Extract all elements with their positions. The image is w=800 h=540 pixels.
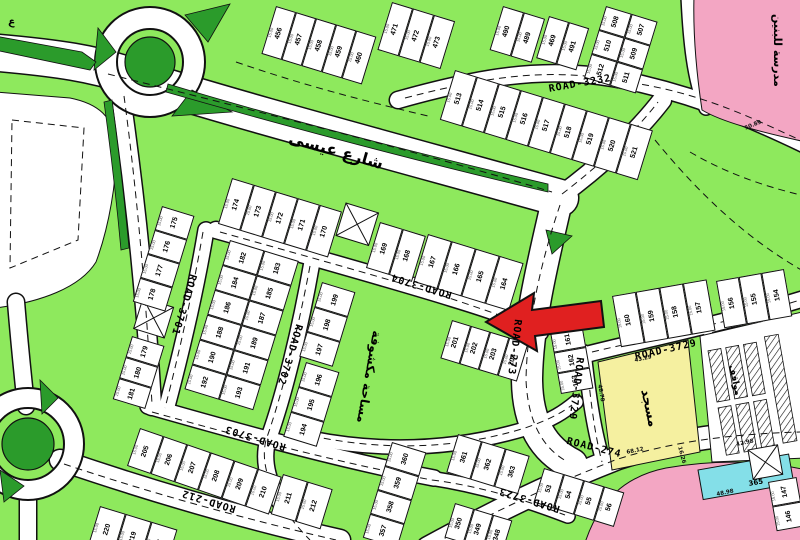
plot-dimension: 15.00 xyxy=(237,335,244,346)
plot-dimension: 15.00 xyxy=(552,339,558,350)
plot-number: 209 xyxy=(235,477,245,490)
plot-dimension: 15.00 xyxy=(490,106,497,117)
plot-dimension: 15.00 xyxy=(688,305,694,316)
plot-dimension: 15.00 xyxy=(766,293,772,304)
plot-number: 191 xyxy=(242,361,252,374)
plot-block-b7: 5315.005415.005515.005615.00 xyxy=(533,468,624,527)
plot-number: 160 xyxy=(624,313,633,326)
plot-dimension: 15.00 xyxy=(225,250,232,261)
plot-block-b1: 20515.0020615.0020715.0020815.0020915.00… xyxy=(127,428,282,515)
plot-dimension: 15.00 xyxy=(195,349,202,360)
plot-number: 362 xyxy=(483,457,493,470)
plot-dimension: 15.00 xyxy=(451,451,458,462)
plot-dimension: 15.00 xyxy=(587,63,594,74)
plot-dimension: 15.00 xyxy=(601,15,608,26)
plot-number: 516 xyxy=(519,112,529,125)
plot-number: 147 xyxy=(780,485,789,498)
plot-number: 154 xyxy=(772,288,781,301)
plot-dimension: 15.00 xyxy=(301,372,308,383)
plot-number: 176 xyxy=(162,240,172,253)
plot-dimension: 15.00 xyxy=(743,297,749,308)
plot-number: 195 xyxy=(306,398,316,411)
plot-number: 510 xyxy=(603,39,613,52)
plot-dimension: 15.00 xyxy=(268,212,275,223)
plot-number: 508 xyxy=(610,15,620,28)
plot-block-c3: 19915.0019815.0019715.00 xyxy=(299,282,355,367)
plot-number: 358 xyxy=(386,500,396,513)
plot-dimension: 15.00 xyxy=(578,495,585,506)
plot-number: 507 xyxy=(636,23,646,36)
plot-number: 187 xyxy=(258,311,268,324)
plot-dimension: 15.00 xyxy=(617,318,623,329)
plot-dimension: 15.00 xyxy=(387,451,394,462)
plot-number: 490 xyxy=(502,25,512,38)
plot-number: 56 xyxy=(605,502,614,512)
plot-dimension: 15.00 xyxy=(420,255,427,266)
plot-dimension: 15.00 xyxy=(556,126,563,137)
plot-dimension: 15.00 xyxy=(475,458,482,469)
plot-block-c2: 17915.0018015.0018115.00 xyxy=(113,336,165,409)
plot-dimension: 15.00 xyxy=(310,317,317,328)
plot-number: 174 xyxy=(231,198,241,211)
plot-dimension: 15.00 xyxy=(467,270,474,281)
plot-number: 158 xyxy=(671,305,680,318)
plot-block-b2: 21115.0021215.00 xyxy=(271,474,333,529)
plot-dimension: 15.00 xyxy=(499,465,506,476)
plot-number: 518 xyxy=(563,125,573,138)
plot-block-t5: 50815.0050715.0051015.0050915.0051215.00… xyxy=(584,6,658,94)
plot-number: 348 xyxy=(492,528,502,540)
plot-number: 189 xyxy=(250,336,260,349)
plot-dimension: 15.00 xyxy=(468,99,475,110)
plot-number: 360 xyxy=(401,453,411,466)
plot-number: 170 xyxy=(319,225,329,238)
plot-number: 211 xyxy=(284,491,294,504)
plot-dimension: 15.00 xyxy=(365,523,372,534)
plot-number: 349 xyxy=(473,522,483,535)
plot-dimension: 15.00 xyxy=(224,198,231,209)
plot-dimension: 15.00 xyxy=(444,263,451,274)
plot-number: 179 xyxy=(140,345,150,358)
plot-number: 193 xyxy=(235,386,245,399)
plot-number: 169 xyxy=(379,242,389,255)
plot-number: 173 xyxy=(253,204,263,217)
plot-block-r1: 16015.0015915.0015815.0015715.00 xyxy=(612,279,716,347)
plot-number: 472 xyxy=(411,29,421,42)
plot-number: 205 xyxy=(140,444,150,457)
plot-dimension: 15.00 xyxy=(227,477,234,488)
plot-dimension: 15.00 xyxy=(721,301,727,312)
plot-146: 14615.00 xyxy=(772,502,800,532)
plot-dimension: 15.00 xyxy=(641,314,647,325)
plot-dimension: 15.00 xyxy=(446,92,453,103)
plot-number: 361 xyxy=(459,450,469,463)
plot-number: 208 xyxy=(211,469,221,482)
plot-block-m4: 20115.0020215.0020315.0020415.00 xyxy=(440,320,528,382)
plot-number: 185 xyxy=(265,286,275,299)
plot-number: 212 xyxy=(309,499,319,512)
plot-dimension: 15.00 xyxy=(620,47,627,58)
plot-number: 197 xyxy=(315,343,325,356)
plot-number: 519 xyxy=(585,132,595,145)
plot-number: 183 xyxy=(273,262,283,275)
plot-number: 489 xyxy=(523,31,533,44)
plot-number: 172 xyxy=(275,211,285,224)
plot-number: 521 xyxy=(629,145,639,158)
plot-number: 175 xyxy=(170,216,180,229)
plot-dimension: 15.00 xyxy=(187,374,194,385)
plot-block-m3: 16715.0016615.0016515.0016415.00 xyxy=(413,234,523,311)
plot-number: 165 xyxy=(475,270,485,283)
plot-dimension: 15.00 xyxy=(244,310,251,321)
plot-number: 207 xyxy=(187,461,197,474)
plot-dimension: 15.00 xyxy=(594,39,601,50)
plot-block-t2: 47115.0047215.0047315.00 xyxy=(377,2,455,69)
plot-number: 162 xyxy=(567,354,576,367)
plot-dimension: 15.00 xyxy=(395,249,402,260)
plot-number: 180 xyxy=(134,366,144,379)
plot-number: 186 xyxy=(223,301,233,314)
plot-number: 177 xyxy=(155,264,165,277)
plot-dimension: 15.00 xyxy=(135,287,142,298)
plot-number: 156 xyxy=(727,296,736,309)
plot-number: 178 xyxy=(148,288,158,301)
plot-dimension: 15.00 xyxy=(150,239,157,250)
plot-number: 357 xyxy=(379,524,389,537)
plot-number: 54 xyxy=(564,490,573,500)
plot-number: 159 xyxy=(648,309,657,322)
plot-number: 457 xyxy=(294,33,304,46)
plot-dimension: 15.00 xyxy=(156,453,163,464)
plot-dimension: 15.00 xyxy=(317,292,324,303)
plot-number: 359 xyxy=(393,477,403,490)
plot-number: 181 xyxy=(127,387,137,400)
plot-dimension: 15.00 xyxy=(302,342,309,353)
plot-dimension: 15.00 xyxy=(203,469,210,480)
plot-number: 53 xyxy=(544,484,553,494)
plot-dimension: 15.00 xyxy=(373,499,380,510)
plot-number: 363 xyxy=(507,465,517,478)
plot-number: 517 xyxy=(541,119,551,132)
plot-dimension: 15.00 xyxy=(775,515,781,526)
plot-dimension: 15.00 xyxy=(380,475,387,486)
plot-dimension: 15.00 xyxy=(115,386,122,397)
plot-map-canvas: 45615.0045715.0045815.0045915.0046015.00… xyxy=(0,0,800,540)
plot-number: 157 xyxy=(695,301,704,314)
plot-number: 513 xyxy=(453,92,463,105)
plot-number: 202 xyxy=(470,341,480,354)
plot-block-b6: 35015.0034915.0034815.00 xyxy=(444,503,512,540)
plot-number: 206 xyxy=(164,452,174,465)
plot-dimension: 15.00 xyxy=(93,523,100,534)
plot-dimension: 15.00 xyxy=(560,380,566,391)
plot-number: 166 xyxy=(451,262,461,275)
plot-block-g1: 18215.0018315.0018415.0018515.0018615.00… xyxy=(184,240,298,410)
plot-dimension: 15.00 xyxy=(534,119,541,130)
plot-dimension: 15.00 xyxy=(119,530,126,540)
plot-block-r3: 16115.0016215.0016315.00 xyxy=(550,326,593,394)
plot-number: 509 xyxy=(629,47,639,60)
plot-number: 459 xyxy=(334,45,344,58)
plot-dimension: 15.00 xyxy=(312,225,319,236)
plot-number: 171 xyxy=(297,218,307,231)
plot-number: 55 xyxy=(584,496,593,506)
plot-number: 471 xyxy=(390,23,400,36)
plot-block-t1: 45615.0045715.0045815.0045915.0046015.00 xyxy=(261,6,376,85)
plot-number: 520 xyxy=(607,139,617,152)
plot-dimension: 15.00 xyxy=(143,263,150,274)
plot-dimension: 15.00 xyxy=(294,397,301,408)
plot-dimension: 15.00 xyxy=(598,501,605,512)
plot-dimension: 15.00 xyxy=(491,277,498,288)
plot-number: 155 xyxy=(750,292,759,305)
plot-number: 188 xyxy=(216,326,226,339)
plot-number: 161 xyxy=(564,333,573,346)
plot-number: 204 xyxy=(508,353,518,366)
plot-number: 511 xyxy=(621,71,631,84)
plot-number: 219 xyxy=(128,530,138,540)
plot-number: 190 xyxy=(208,351,218,364)
plot-number: 168 xyxy=(402,249,412,262)
plot-block-b4: 36015.0035915.0035815.0035715.00 xyxy=(363,442,427,540)
plot-dimension: 15.00 xyxy=(578,133,585,144)
plot-dimension: 15.00 xyxy=(558,489,565,500)
plot-number: 220 xyxy=(102,522,112,535)
plot-number: 469 xyxy=(548,33,558,46)
plot-block-b5: 36115.0036215.0036315.00 xyxy=(446,434,529,494)
plot-number: 515 xyxy=(497,105,507,118)
plot-dimension: 15.00 xyxy=(276,492,283,503)
plot-number: 473 xyxy=(432,35,442,48)
plot-number: 203 xyxy=(489,347,499,360)
plot-dimension: 15.00 xyxy=(260,260,267,271)
plot-dimension: 15.00 xyxy=(202,324,209,335)
plot-dimension: 15.00 xyxy=(301,499,308,510)
plot-dimension: 15.00 xyxy=(218,275,225,286)
plot-dimension: 15.00 xyxy=(179,461,186,472)
plot-block-c1: 17515.0017615.0017715.0017815.00 xyxy=(133,206,195,312)
plot-dimension: 15.00 xyxy=(771,490,777,501)
plot-dimension: 15.00 xyxy=(229,360,236,371)
plot-dimension: 15.00 xyxy=(128,344,135,355)
plot-dimension: 15.00 xyxy=(290,219,297,230)
plot-dimension: 15.00 xyxy=(600,139,607,150)
plot-number: 146 xyxy=(784,510,793,523)
plot-number: 198 xyxy=(322,318,332,331)
plot-number: 350 xyxy=(454,517,464,530)
plot-number: 458 xyxy=(314,39,324,52)
plot-dimension: 15.00 xyxy=(286,422,293,433)
plot-dimension: 15.00 xyxy=(132,444,139,455)
plot-number: 196 xyxy=(314,373,324,386)
plot-number: 456 xyxy=(274,26,284,39)
plot-dimension: 15.00 xyxy=(372,242,379,253)
plot-dimension: 15.00 xyxy=(556,359,562,370)
plot-block-b3: 22015.0021915.0021815.00 xyxy=(88,506,177,540)
plot-number: 514 xyxy=(475,98,485,111)
plot-number: 184 xyxy=(231,276,241,289)
plot-dimension: 15.00 xyxy=(210,300,217,311)
plot-dimension: 15.00 xyxy=(622,146,629,157)
plot-dimension: 15.00 xyxy=(538,483,545,494)
plot-dimension: 15.00 xyxy=(627,23,634,34)
plot-number: 460 xyxy=(354,51,364,64)
plot-number: 512 xyxy=(596,63,606,76)
plot-block-t4: 46915.0049115.00 xyxy=(536,16,589,70)
plot-number: 182 xyxy=(238,251,248,264)
plot-dimension: 15.00 xyxy=(512,112,519,123)
plot-dimension: 15.00 xyxy=(222,385,229,396)
plot-dimension: 15.00 xyxy=(246,205,253,216)
plot-number: 491 xyxy=(568,40,578,53)
plot-dimension: 15.00 xyxy=(250,485,257,496)
plot-163: 16315.00 xyxy=(557,368,593,394)
plot-dimension: 15.00 xyxy=(252,285,259,296)
plot-block-r4: 14715.0014615.00 xyxy=(768,477,800,531)
plot-dimension: 15.00 xyxy=(664,309,670,320)
plot-number: 164 xyxy=(499,277,509,290)
plot-number: 167 xyxy=(428,255,438,268)
plot-number: 163 xyxy=(571,374,580,387)
plot-blocks-layer: 45615.0045715.0045815.0045915.0046015.00… xyxy=(0,0,800,540)
plot-number: 199 xyxy=(330,293,340,306)
plot-block-r2: 15615.0015515.0015415.00 xyxy=(716,269,792,328)
plot-dimension: 15.00 xyxy=(157,215,164,226)
plot-dimension: 15.00 xyxy=(121,365,128,376)
plot-number: 201 xyxy=(451,335,461,348)
plot-number: 194 xyxy=(299,423,309,436)
plot-block-c4: 19615.0019515.0019415.00 xyxy=(283,362,339,447)
plot-dimension: 15.00 xyxy=(612,71,619,82)
plot-number: 210 xyxy=(258,485,268,498)
plot-number: 192 xyxy=(200,375,210,388)
